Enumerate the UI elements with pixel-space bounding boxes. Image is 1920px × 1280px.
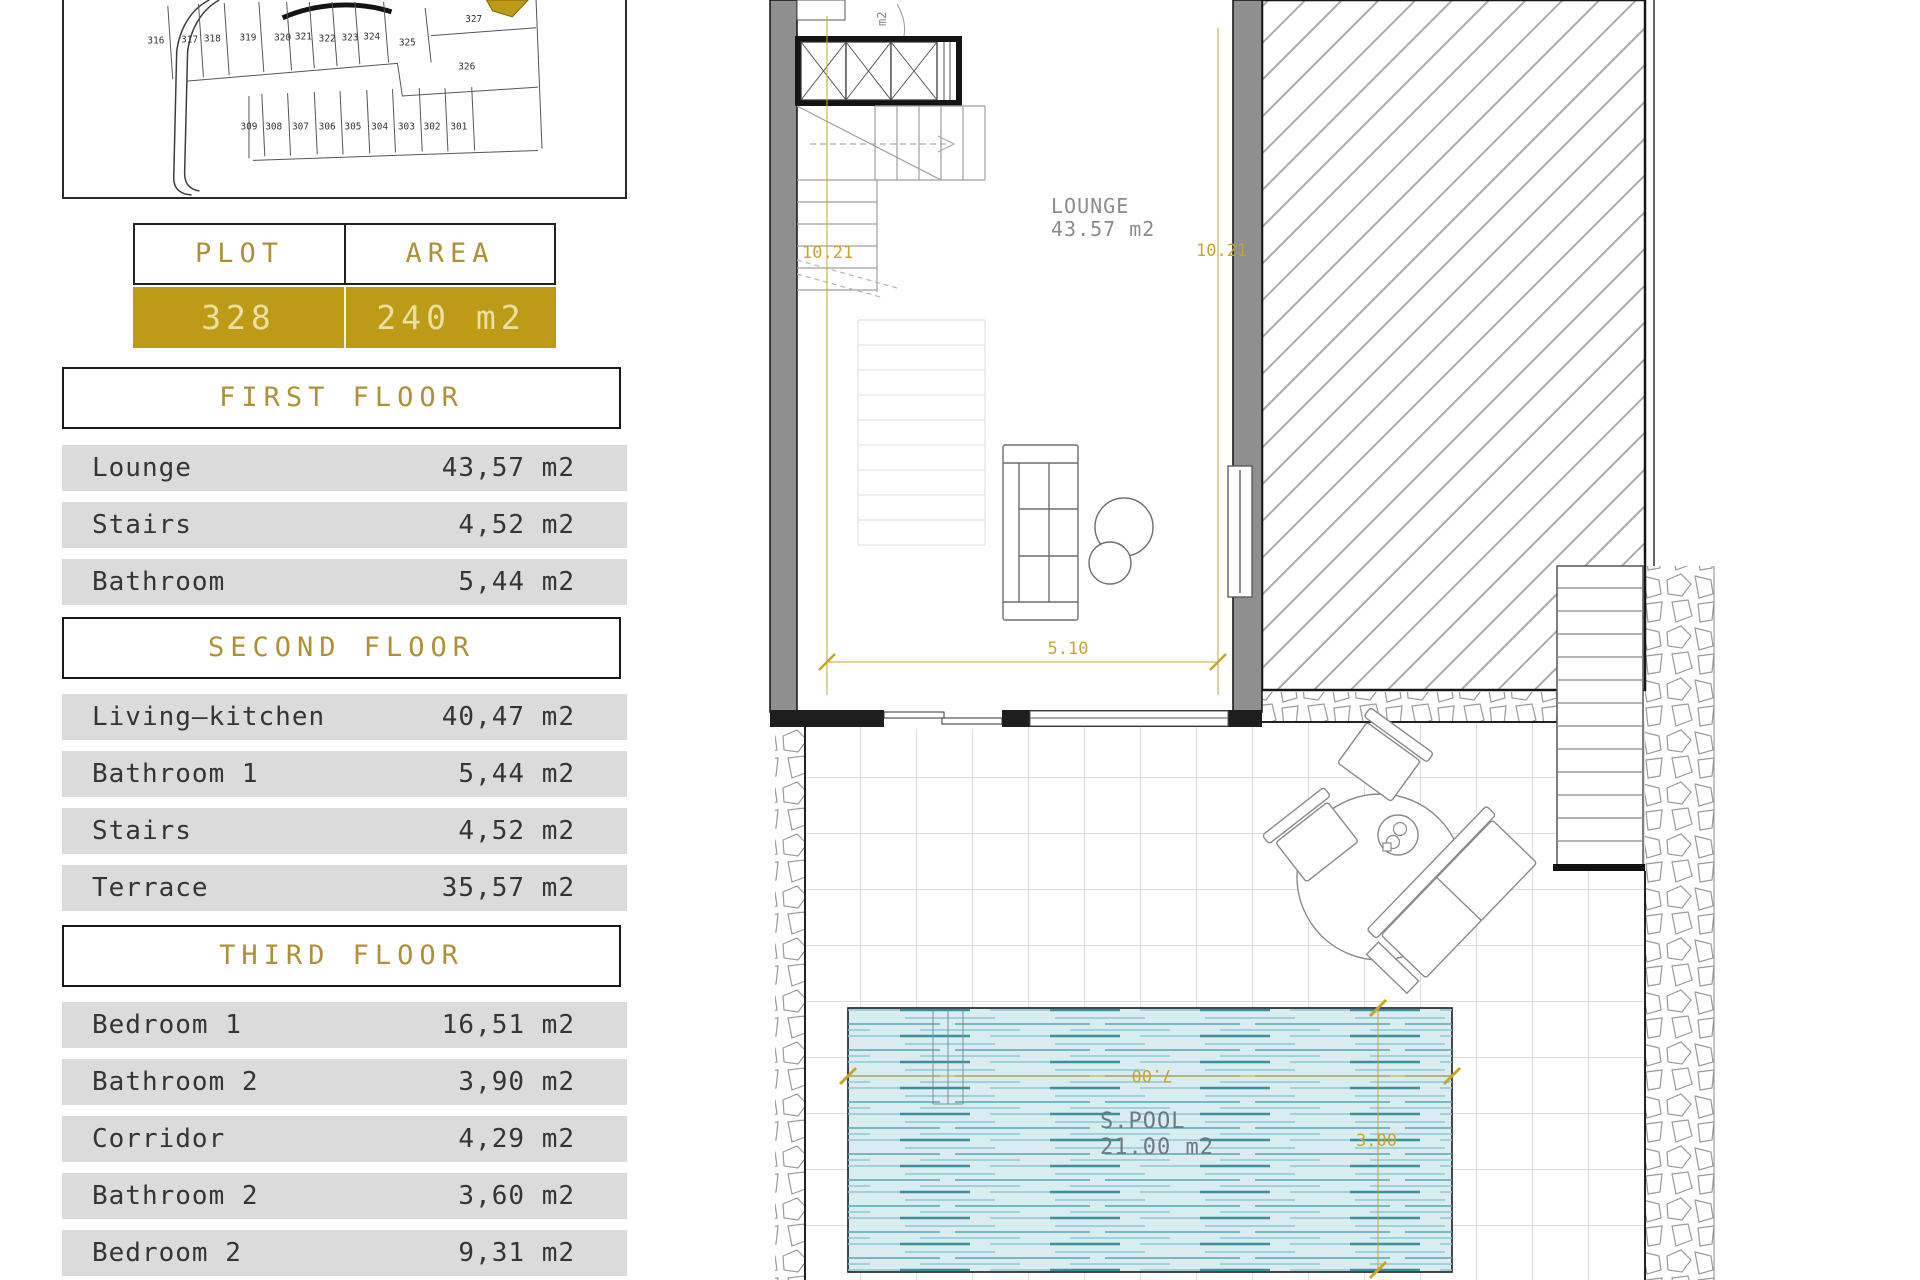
room-row: Corridor 4,29 m2 <box>62 1116 627 1162</box>
room-row: Bathroom 2 3,60 m2 <box>62 1173 627 1219</box>
room-area: 43,57 m2 <box>442 445 575 491</box>
svg-text:318: 318 <box>204 34 221 45</box>
svg-text:302: 302 <box>424 122 441 133</box>
svg-text:319: 319 <box>239 33 256 44</box>
pergola-structure <box>1553 566 1645 871</box>
svg-text:306: 306 <box>319 122 336 133</box>
svg-text:303: 303 <box>398 122 415 133</box>
svg-text:305: 305 <box>344 122 361 133</box>
room-area: 16,51 m2 <box>442 1002 575 1048</box>
room-area: 9,31 m2 <box>458 1230 575 1276</box>
room-row: Bathroom 5,44 m2 <box>62 559 627 605</box>
room-area: 4,52 m2 <box>458 808 575 854</box>
room-name: Stairs <box>92 808 192 854</box>
tv-unit <box>1228 466 1252 597</box>
room-area: 4,29 m2 <box>458 1116 575 1162</box>
section-title-second-floor: SECOND FLOOR <box>62 617 621 679</box>
plot-number-value: 328 <box>133 287 346 348</box>
room-name: Bathroom 1 <box>92 751 259 797</box>
svg-text:325: 325 <box>399 38 416 49</box>
lounge-area-label: 43.57 m2 <box>1051 217 1155 241</box>
room-name: Bathroom <box>92 559 225 605</box>
room-row: Bathroom 1 5,44 m2 <box>62 751 627 797</box>
sofa <box>1003 445 1078 620</box>
plot-number-labels: 316 317 318 319 320 321 322 323 324 325 … <box>147 14 482 133</box>
room-row: Stairs 4,52 m2 <box>62 808 627 854</box>
dim-right-height: 10.21 <box>1196 241 1247 261</box>
room-name: Lounge <box>92 445 192 491</box>
room-name: Terrace <box>92 865 209 911</box>
floor-plan-drawing: m2 S.PO <box>620 0 1920 1280</box>
svg-text:323: 323 <box>341 33 358 44</box>
plot-table-header: PLOT AREA (SIZE) <box>133 223 556 285</box>
room-name: Bedroom 1 <box>92 1002 242 1048</box>
svg-text:322: 322 <box>319 34 336 45</box>
dim-pool-width: 7.00 <box>1132 1065 1173 1085</box>
svg-text:308: 308 <box>265 122 282 133</box>
svg-text:301: 301 <box>450 122 467 133</box>
room-area: 3,60 m2 <box>458 1173 575 1219</box>
svg-text:324: 324 <box>363 32 380 43</box>
room-name: Corridor <box>92 1116 225 1162</box>
room-row: Living—kitchen 40,47 m2 <box>62 694 627 740</box>
site-plan-box: 316 317 318 319 320 321 322 323 324 325 … <box>62 0 627 199</box>
room-row: Bedroom 1 16,51 m2 <box>62 1002 627 1048</box>
pool-area-label: 21.00 m2 <box>1100 1135 1214 1160</box>
room-row: Bathroom 2 3,90 m2 <box>62 1059 627 1105</box>
room-row: Bedroom 2 9,31 m2 <box>62 1230 627 1276</box>
section-title-third-floor: THIRD FLOOR <box>62 925 621 987</box>
room-name: Stairs <box>92 502 192 548</box>
section-title-first-floor: FIRST FLOOR <box>62 367 621 429</box>
lounge-name-label: LOUNGE <box>1051 194 1129 218</box>
room-row: Stairs 4,52 m2 <box>62 502 627 548</box>
sliding-door <box>884 708 1002 729</box>
road-boundary <box>174 0 220 195</box>
room-area: 5,44 m2 <box>458 751 575 797</box>
plot-column-header: PLOT <box>135 225 346 283</box>
dim-pool-depth: 3.00 <box>1356 1131 1397 1151</box>
room-area: 40,47 m2 <box>442 694 575 740</box>
highlighted-plot-328 <box>487 0 529 17</box>
adjacent-block-outline <box>283 5 392 18</box>
room-name: Bathroom 2 <box>92 1059 259 1105</box>
area-column-header: AREA (SIZE) <box>346 225 554 283</box>
svg-text:320: 320 <box>274 33 291 44</box>
room-area: 4,52 m2 <box>458 502 575 548</box>
room-area: 5,44 m2 <box>458 559 575 605</box>
dim-left-height: 10.21 <box>802 243 853 263</box>
site-plan-map: 316 317 318 319 320 321 322 323 324 325 … <box>64 0 625 197</box>
window <box>1030 711 1228 726</box>
room-row: Terrace 35,57 m2 <box>62 865 627 911</box>
room-row: Lounge 43,57 m2 <box>62 445 627 491</box>
pool-name-label: S.POOL <box>1100 1109 1185 1134</box>
svg-text:326: 326 <box>458 61 475 72</box>
room-name: Living—kitchen <box>92 694 325 740</box>
room-area: 35,57 m2 <box>442 865 575 911</box>
svg-text:327: 327 <box>465 14 482 25</box>
plot-area-value: 240 m2 <box>346 287 556 348</box>
svg-text:321: 321 <box>295 32 312 43</box>
svg-text:307: 307 <box>292 122 309 133</box>
dim-bottom-width: 5.10 <box>1048 639 1089 659</box>
room-area: 3,90 m2 <box>458 1059 575 1105</box>
stairs-area-note: m2 <box>875 12 889 26</box>
svg-text:316: 316 <box>147 36 164 47</box>
room-name: Bathroom 2 <box>92 1173 259 1219</box>
plot-table-values: 328 240 m2 <box>133 287 556 348</box>
plot-boundaries <box>168 0 542 160</box>
room-name: Bedroom 2 <box>92 1230 242 1276</box>
svg-text:309: 309 <box>240 122 257 133</box>
svg-text:304: 304 <box>371 122 388 133</box>
svg-text:317: 317 <box>181 35 198 46</box>
